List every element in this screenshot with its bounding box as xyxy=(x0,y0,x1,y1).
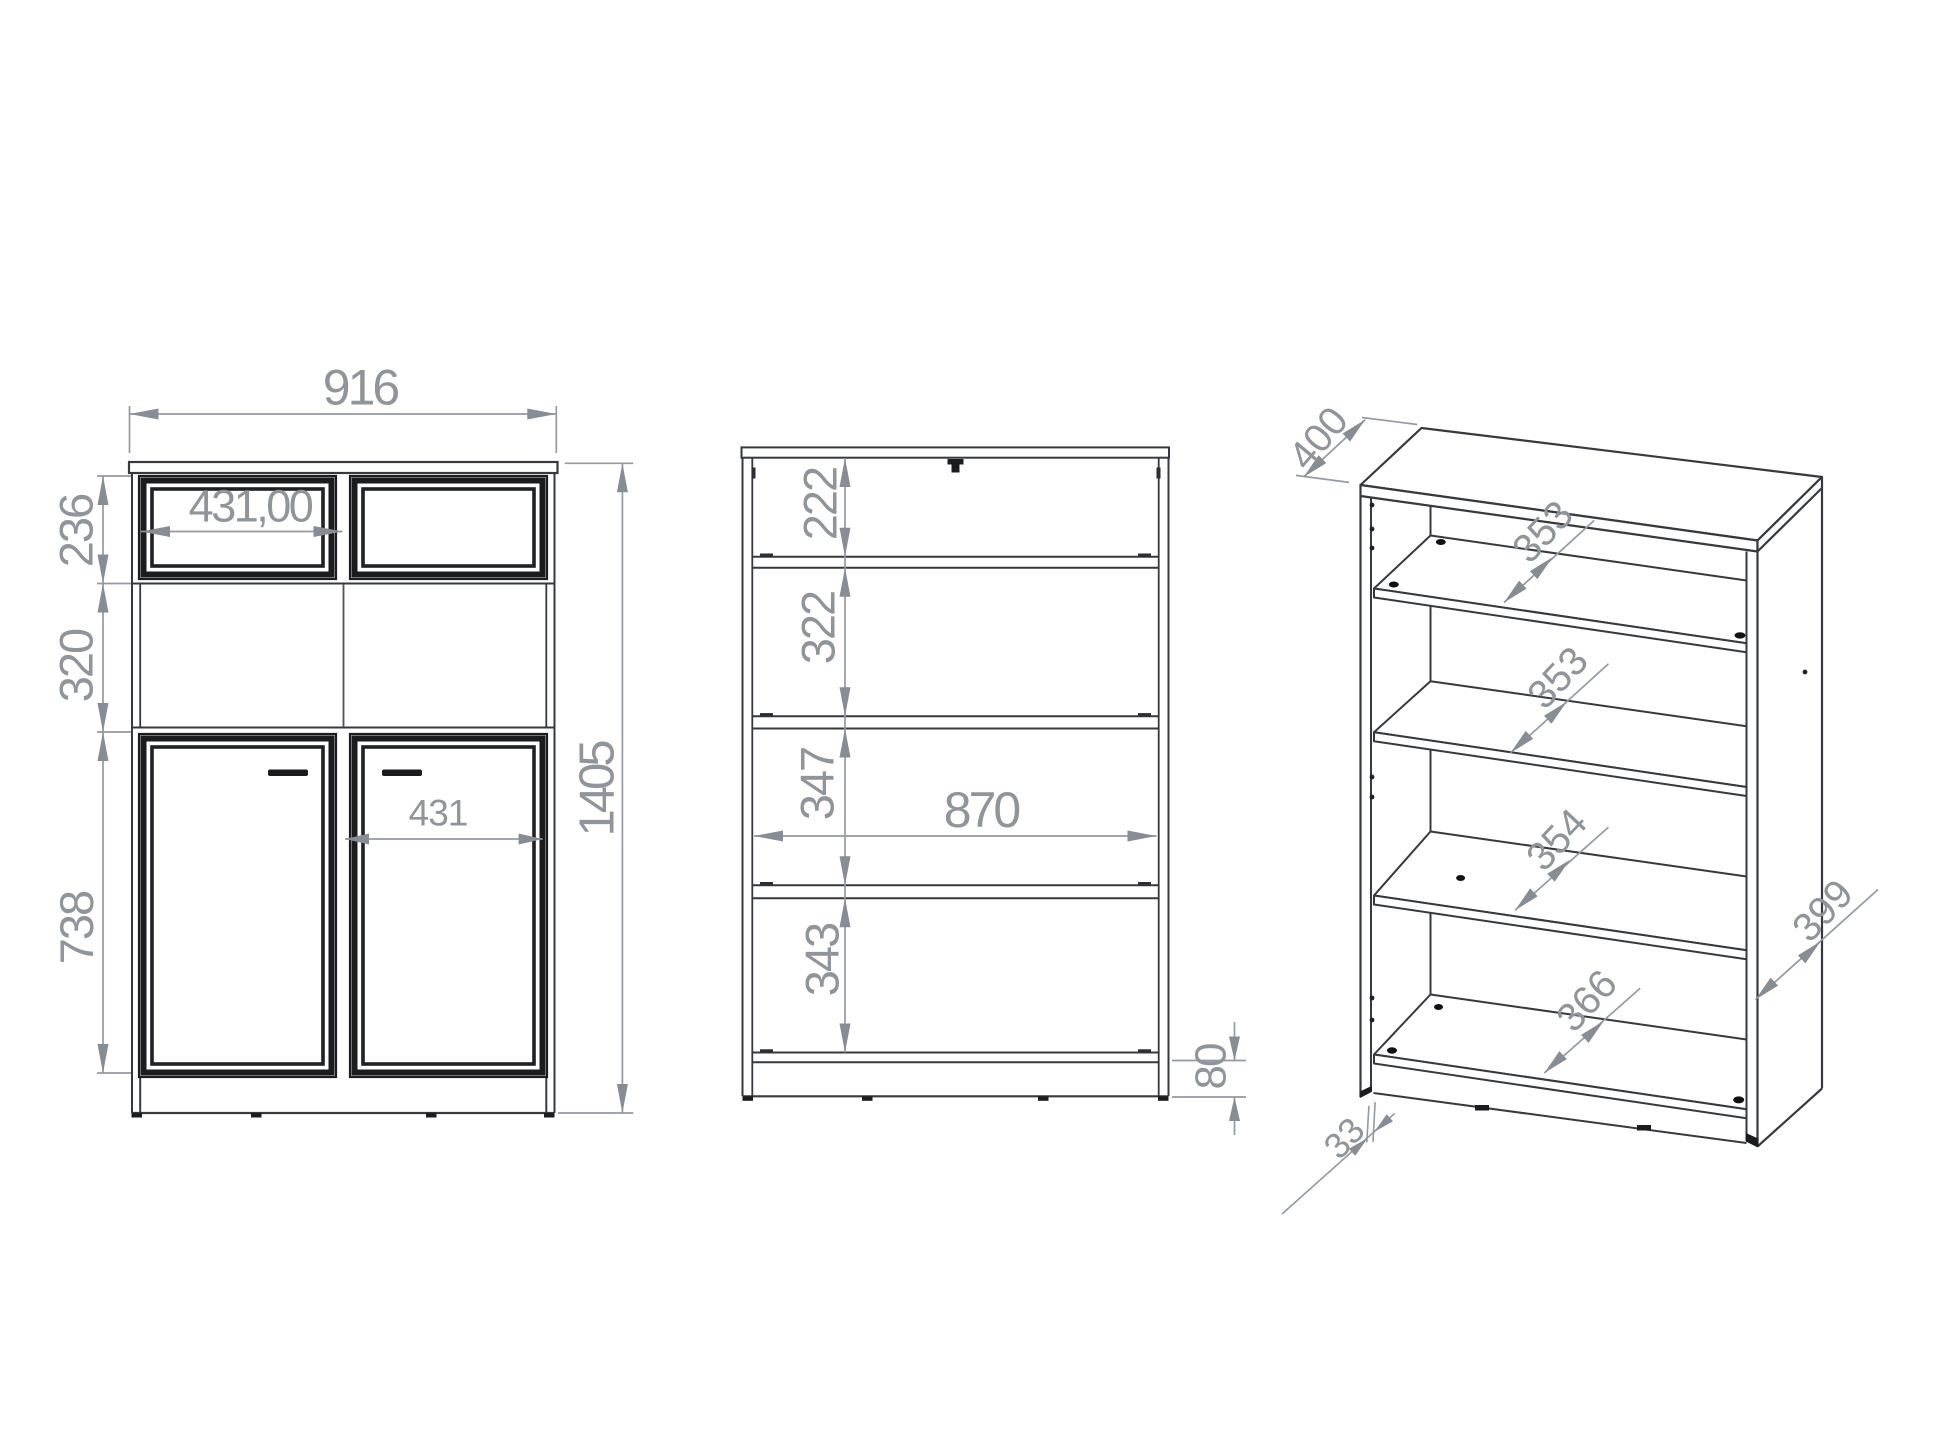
svg-text:322: 322 xyxy=(792,592,845,664)
svg-text:222: 222 xyxy=(794,468,847,540)
svg-text:236: 236 xyxy=(50,494,103,567)
svg-text:431: 431 xyxy=(409,793,468,834)
svg-text:738: 738 xyxy=(50,891,103,964)
svg-text:431,00: 431,00 xyxy=(189,481,313,532)
svg-text:80: 80 xyxy=(1187,1044,1236,1089)
svg-text:916: 916 xyxy=(323,360,399,416)
svg-text:347: 347 xyxy=(791,748,844,820)
svg-text:320: 320 xyxy=(50,629,103,702)
svg-text:870: 870 xyxy=(944,782,1020,838)
svg-text:1405: 1405 xyxy=(571,741,625,837)
svg-text:343: 343 xyxy=(796,923,849,996)
